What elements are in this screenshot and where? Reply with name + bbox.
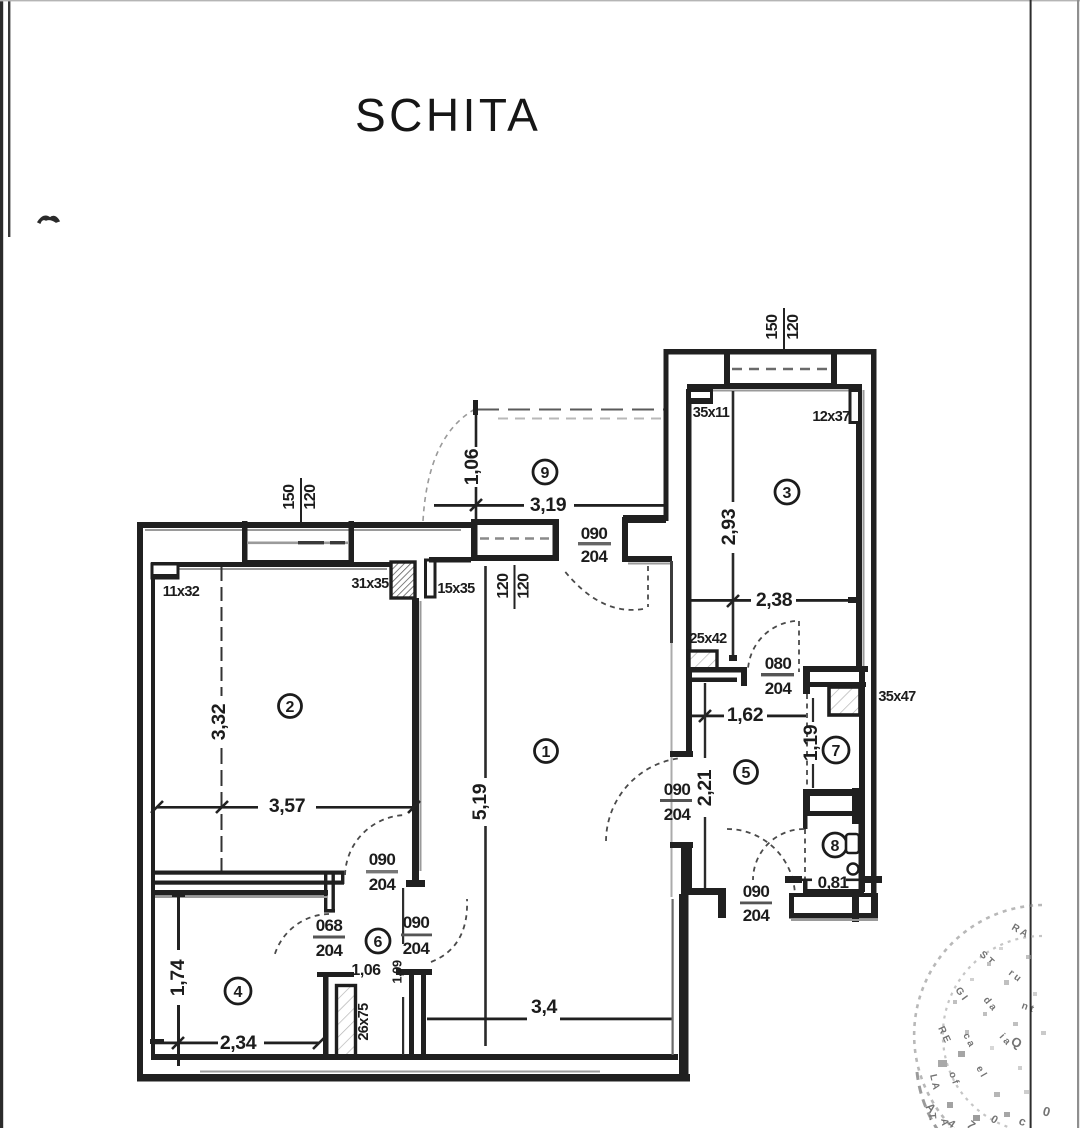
svg-text:204: 204 xyxy=(743,906,771,925)
svg-text:204: 204 xyxy=(664,805,692,824)
svg-text:5,19: 5,19 xyxy=(469,783,491,820)
svg-text:2,34: 2,34 xyxy=(220,1032,257,1054)
svg-text:9: 9 xyxy=(541,465,550,482)
svg-text:35x11: 35x11 xyxy=(693,405,730,421)
svg-text:120: 120 xyxy=(785,314,802,340)
svg-text:3,19: 3,19 xyxy=(530,494,567,516)
svg-text:4: 4 xyxy=(234,984,243,1001)
svg-text:090: 090 xyxy=(743,882,770,901)
svg-text:8: 8 xyxy=(831,838,840,855)
svg-text:1,06: 1,06 xyxy=(351,962,381,979)
svg-text:090: 090 xyxy=(403,913,430,932)
svg-text:SCHITA: SCHITA xyxy=(355,89,541,141)
svg-text:3,57: 3,57 xyxy=(269,795,305,817)
svg-text:090: 090 xyxy=(581,524,608,543)
svg-text:204: 204 xyxy=(369,875,397,894)
svg-text:068: 068 xyxy=(316,916,343,935)
svg-text:150: 150 xyxy=(281,484,298,510)
svg-text:5: 5 xyxy=(742,765,751,782)
svg-text:7: 7 xyxy=(832,743,841,760)
svg-text:15x35: 15x35 xyxy=(437,581,475,597)
svg-text:0,81: 0,81 xyxy=(818,873,849,892)
svg-text:090: 090 xyxy=(664,780,691,799)
svg-text:120: 120 xyxy=(516,573,533,599)
svg-text:3,32: 3,32 xyxy=(208,703,230,740)
svg-text:204: 204 xyxy=(765,679,793,698)
svg-text:26x75: 26x75 xyxy=(356,1003,372,1041)
svg-text:6: 6 xyxy=(374,934,383,951)
svg-text:12x37: 12x37 xyxy=(812,409,850,425)
svg-text:25x42: 25x42 xyxy=(689,631,727,647)
svg-text:3: 3 xyxy=(783,485,792,502)
svg-text:35x47: 35x47 xyxy=(878,689,916,705)
svg-text:204: 204 xyxy=(403,939,431,958)
svg-text:2: 2 xyxy=(286,699,295,716)
svg-text:1: 1 xyxy=(542,744,551,761)
svg-text:204: 204 xyxy=(581,547,609,566)
svg-text:2,21: 2,21 xyxy=(694,769,716,806)
svg-text:120: 120 xyxy=(302,484,319,510)
svg-text:204: 204 xyxy=(316,941,344,960)
svg-text:3,4: 3,4 xyxy=(531,996,557,1018)
svg-text:120: 120 xyxy=(495,573,512,599)
svg-text:1,19: 1,19 xyxy=(800,724,822,761)
svg-text:1,06: 1,06 xyxy=(461,448,483,485)
svg-text:2,38: 2,38 xyxy=(756,589,793,611)
svg-text:1,74: 1,74 xyxy=(167,959,189,996)
svg-text:150: 150 xyxy=(764,314,781,340)
svg-text:090: 090 xyxy=(369,850,396,869)
svg-text:1,09: 1,09 xyxy=(389,960,404,984)
svg-text:080: 080 xyxy=(765,654,792,673)
svg-text:11x32: 11x32 xyxy=(163,584,200,600)
svg-text:2,93: 2,93 xyxy=(718,508,740,545)
svg-text:31x35: 31x35 xyxy=(351,576,389,592)
svg-text:1,62: 1,62 xyxy=(727,704,764,726)
